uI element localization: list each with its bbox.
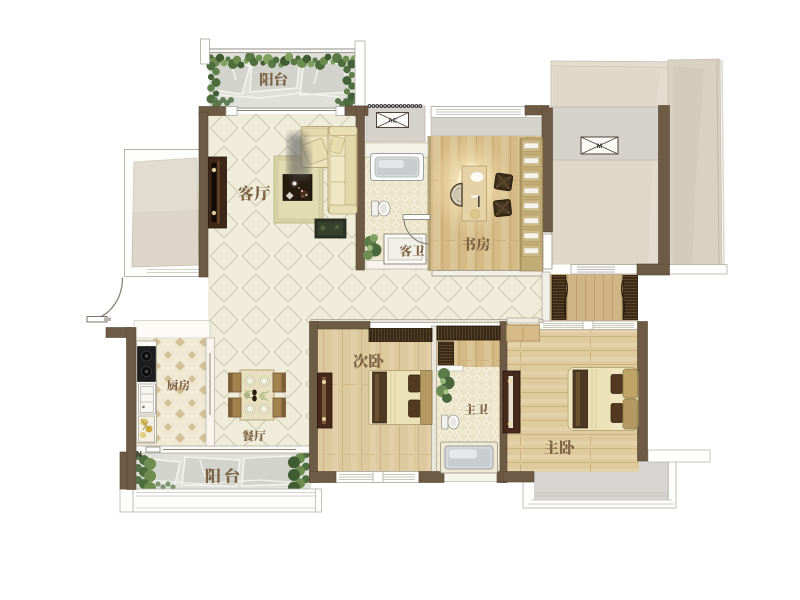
- svg-text:N: N: [136, 450, 142, 459]
- svg-text:M: M: [597, 143, 602, 150]
- svg-text:AC: AC: [388, 119, 397, 125]
